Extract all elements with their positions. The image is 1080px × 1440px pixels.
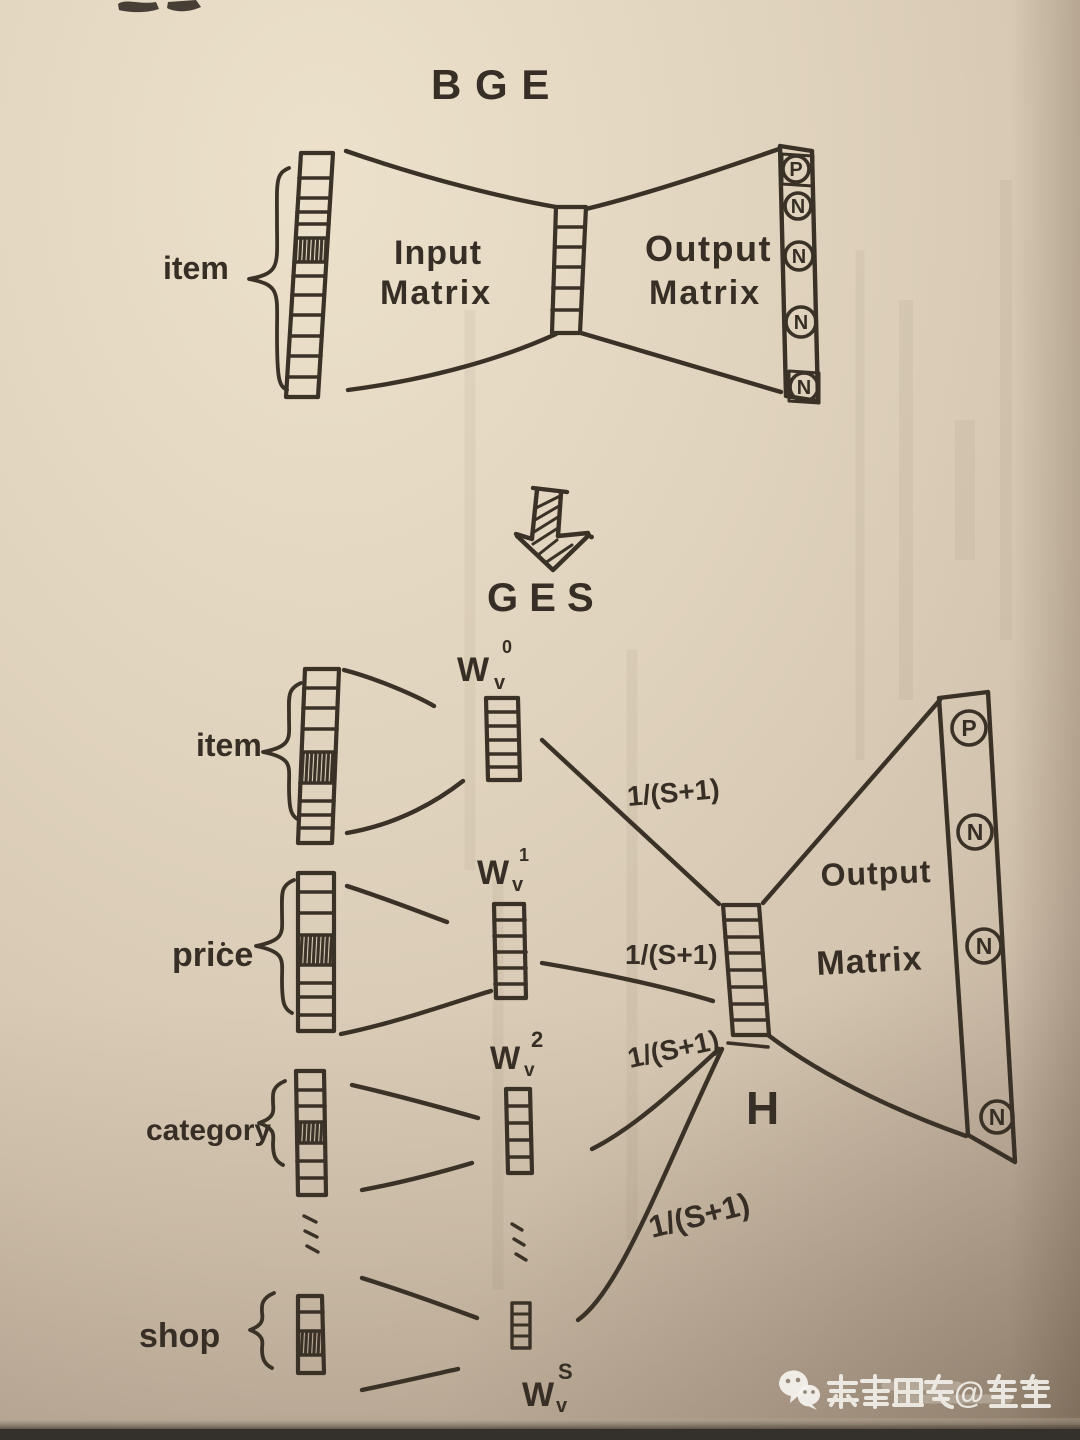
svg-text:N: N	[967, 819, 984, 845]
svg-text:B G E: B G E	[431, 61, 550, 108]
svg-text:0: 0	[502, 637, 512, 657]
svg-text:P: P	[789, 159, 802, 181]
svg-text:N: N	[794, 312, 808, 334]
svg-text:2: 2	[531, 1027, 543, 1052]
svg-text:v: v	[556, 1395, 568, 1417]
svg-text:1: 1	[519, 845, 529, 865]
svg-text:W: W	[490, 1040, 521, 1076]
svg-text:Output: Output	[645, 228, 772, 269]
svg-text:H: H	[746, 1082, 779, 1134]
svg-text:Matrix: Matrix	[649, 274, 761, 312]
svg-text:S: S	[558, 1359, 573, 1384]
svg-text:W: W	[522, 1376, 555, 1414]
svg-text:category: category	[146, 1114, 271, 1147]
svg-text:1/(S+1): 1/(S+1)	[625, 939, 718, 970]
svg-text:P: P	[961, 715, 976, 741]
svg-text:v: v	[524, 1060, 535, 1081]
svg-text:@: @	[954, 1375, 984, 1410]
svg-text:W: W	[457, 651, 490, 689]
svg-text:N: N	[792, 246, 806, 268]
svg-text:v: v	[512, 874, 524, 896]
svg-text:Matrix: Matrix	[380, 274, 492, 312]
svg-text:shop: shop	[139, 1317, 220, 1355]
svg-text:Input: Input	[394, 234, 482, 272]
svg-text:Matrix: Matrix	[815, 939, 923, 983]
svg-text:item: item	[196, 727, 262, 763]
svg-text:item: item	[163, 250, 229, 286]
svg-text:W: W	[477, 854, 510, 892]
svg-text:N: N	[791, 196, 805, 218]
svg-text:N: N	[976, 933, 993, 959]
svg-text:v: v	[494, 672, 506, 694]
svg-text:G E S: G E S	[487, 576, 594, 620]
svg-text:N: N	[989, 1104, 1006, 1130]
svg-text:N: N	[797, 377, 811, 399]
svg-text:price: price	[172, 936, 253, 974]
svg-text:Output: Output	[820, 853, 932, 893]
